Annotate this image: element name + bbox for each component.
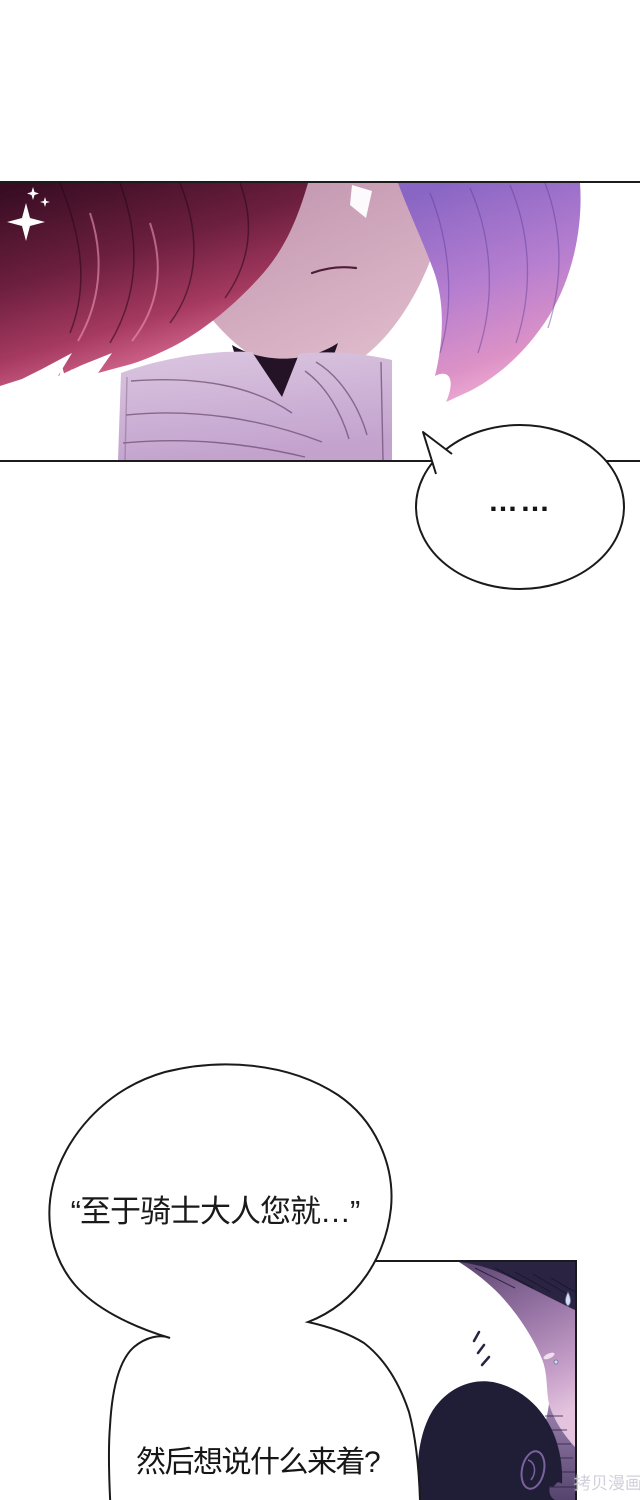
speech-bubble-large <box>20 1050 440 1500</box>
dialogue-line-2: 然后想说什么来着? <box>136 1437 379 1481</box>
sweat-drop-small <box>554 1360 558 1364</box>
collar <box>118 352 392 460</box>
comic-page: …… <box>0 0 640 1500</box>
watermark-text: 拷贝漫画 <box>574 1469 640 1494</box>
emphasis-marks <box>474 1332 489 1365</box>
ellipsis-dots: …… <box>455 480 585 524</box>
dialogue-line-1: “至于骑士大人您就…” <box>30 1186 400 1231</box>
